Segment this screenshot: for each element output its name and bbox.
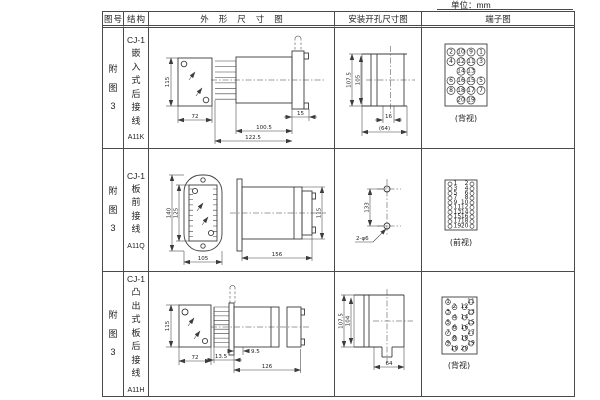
- terminal-circles-a11h: 1234567891011121314151617181920: [445, 298, 474, 352]
- terminal-number: 20: [457, 96, 465, 103]
- dim-hole-spacing: 133: [365, 202, 371, 213]
- outline-diagram-a11h: 115 72: [149, 273, 334, 396]
- terminal-number: 11: [467, 298, 475, 305]
- side-view-linework: 156 115: [230, 179, 326, 261]
- terminal-number: 17: [467, 87, 475, 94]
- terminal-circle: [448, 196, 452, 200]
- terminal-number: 20: [460, 222, 468, 229]
- fig-no: 附图3: [107, 306, 119, 363]
- terminal-diagram-a11h: 1234567891011121314151617181920 (背视): [423, 273, 574, 396]
- terminal-number: 7: [446, 329, 450, 336]
- dim-body-length: 156: [272, 252, 283, 258]
- cutout-linework: [362, 46, 415, 114]
- terminal-circle: [448, 215, 452, 219]
- terminal-number: 13: [467, 68, 475, 75]
- dim-pin-length: 13.5: [215, 354, 228, 360]
- terminal-number: 9: [446, 339, 450, 346]
- terminal-circle: [470, 196, 474, 200]
- structure-code: A11K: [128, 134, 145, 141]
- terminal-number: 19: [467, 96, 475, 103]
- terminal-number: 10: [450, 344, 458, 351]
- dim-front-height: 115: [165, 76, 171, 87]
- dim-body-length: 100.5: [256, 125, 272, 131]
- terminal-diagram-a11q: 1357911131517192468101214161820 (前视): [423, 149, 574, 271]
- structure-cell-a11k: CJ-1 嵌入式后接线 A11K: [124, 28, 149, 149]
- dim-front-height: 115: [165, 320, 171, 331]
- terminal-number: 20: [460, 344, 468, 351]
- terminal-number: 16: [457, 77, 465, 84]
- terminal-number: 4: [449, 58, 453, 65]
- structure-cell-a11h: CJ-1 凸出式板后接线 A11H: [124, 272, 149, 396]
- terminal-number: 11: [467, 58, 475, 65]
- terminal-number: 7: [479, 87, 483, 94]
- side-view-linework: 13.5 9.5 126: [206, 285, 311, 373]
- terminal-circle: [470, 210, 474, 214]
- terminal-view-label: (背视): [454, 113, 476, 123]
- terminal-circle: [470, 220, 474, 224]
- structure-info: CJ-1 嵌入式后接线 A11K: [127, 35, 145, 141]
- structure-cell-a11q: CJ-1 板前接线 A11Q: [124, 149, 149, 272]
- terminal-circle: [470, 206, 474, 210]
- hole-dims: 133 2-φ6: [355, 189, 386, 242]
- terminal-circle: [470, 187, 474, 191]
- dim-side-height: 115: [317, 207, 323, 218]
- terminal-number: 14: [457, 68, 465, 75]
- fig-no: 附图3: [107, 182, 119, 239]
- structure-model: CJ-1: [127, 171, 145, 181]
- fig-no-cell-a11h: 附图3: [103, 272, 124, 396]
- datasheet-page: 单位：mm 图号 结构 外形尺寸图 安装开孔尺寸图 端子图 附图3 CJ-1 嵌…: [0, 0, 600, 400]
- terminal-number: 8: [449, 87, 453, 94]
- outline-diagram-a11k: 115 72 1: [149, 28, 334, 148]
- structure-code: A11Q: [127, 243, 144, 250]
- dim-mount-inner-w: 16: [385, 114, 392, 120]
- terminal-cell-a11q: 1357911131517192468101214161820 (前视): [422, 149, 574, 272]
- header-mounting: 安装开孔尺寸图: [335, 12, 422, 28]
- dim-inner-height: 125: [174, 207, 180, 218]
- terminal-number: 5: [446, 318, 450, 325]
- terminal-view-label: (前视): [449, 237, 471, 247]
- structure-type: 板前接线: [130, 183, 142, 237]
- terminal-number: 13: [467, 308, 475, 315]
- cutout-dims: 107.5 104 64: [339, 295, 405, 370]
- terminal-cell-a11k: 2109141211314136161558181772019 (背视): [422, 28, 574, 149]
- front-view-linework: 115 72: [165, 58, 212, 123]
- dim-mount-outer-w: 64: [386, 361, 393, 367]
- outline-diagram-a11q: 140 125 105: [149, 149, 334, 271]
- terminal-number: 3: [479, 58, 483, 65]
- terminal-number: 2: [452, 303, 456, 310]
- mounting-cell-a11k: 107.5 105 16 (64): [335, 28, 422, 149]
- terminal-circle: [448, 224, 452, 228]
- structure-model: CJ-1: [127, 35, 145, 45]
- terminal-circle: [470, 182, 474, 186]
- hole-linework: [377, 179, 401, 236]
- terminal-number: 5: [479, 77, 483, 84]
- front-view-linework: 115 72: [165, 305, 211, 365]
- terminal-number: 19: [467, 339, 475, 346]
- dim-flange-width: 15: [297, 111, 304, 117]
- structure-code: A11H: [127, 387, 144, 394]
- header-outline: 外形尺寸图: [149, 12, 335, 28]
- mounting-diagram-a11q: 133 2-φ6: [335, 149, 421, 271]
- terminal-number: 6: [452, 324, 456, 331]
- fig-no: 附图3: [107, 60, 119, 117]
- dim-mount-outer-w: (64): [379, 126, 390, 132]
- dim-mount-outer-h: 107.5: [347, 72, 353, 88]
- terminal-circles-a11k: 2109141211314136161558181772019: [447, 48, 485, 104]
- terminal-circle: [470, 191, 474, 195]
- front-view-linework: 140 125 105: [167, 175, 223, 265]
- terminal-diagram-a11k: 2109141211314136161558181772019 (背视): [423, 28, 574, 148]
- dim-front-width: 72: [192, 114, 199, 120]
- dim-front-width: 105: [198, 256, 209, 262]
- structure-type: 嵌入式后接线: [130, 47, 142, 128]
- structure-model: CJ-1: [127, 274, 145, 284]
- outline-cell-a11k: 115 72 1: [149, 28, 335, 149]
- terminal-circles-a11q: 1357911131517192468101214161820: [448, 180, 474, 229]
- terminal-circle: [448, 182, 452, 186]
- terminal-number: 9: [469, 48, 473, 55]
- header-terminal: 端子图: [422, 12, 574, 28]
- terminal-circle: [448, 187, 452, 191]
- structure-type: 凸出式板后接线: [130, 286, 142, 381]
- dim-offset: 9.5: [251, 349, 260, 355]
- terminal-number: 10: [457, 48, 465, 55]
- dim-mount-inner-h: 105: [356, 74, 362, 85]
- terminal-number: 2: [449, 48, 453, 55]
- terminal-circle: [448, 191, 452, 195]
- hole-callout: 2-φ6: [356, 236, 369, 242]
- outline-cell-a11h: 115 72: [149, 272, 335, 396]
- terminal-circle: [470, 215, 474, 219]
- terminal-number: 3: [446, 308, 450, 315]
- structure-info: CJ-1 板前接线 A11Q: [127, 171, 145, 250]
- side-view-linework: 100.5 122.5 15: [211, 36, 325, 144]
- mounting-cell-a11q: 133 2-φ6: [335, 149, 422, 272]
- terminal-circle: [470, 224, 474, 228]
- terminal-number: 17: [467, 329, 475, 336]
- outline-cell-a11q: 140 125 105: [149, 149, 335, 272]
- terminal-number: 15: [467, 318, 475, 325]
- terminal-number: 18: [457, 87, 465, 94]
- mounting-cell-a11h: 107.5 104 64: [335, 272, 422, 396]
- dim-front-width: 72: [192, 355, 199, 361]
- terminal-number: 6: [449, 77, 453, 84]
- terminal-circle: [448, 206, 452, 210]
- terminal-view-label: (背视): [447, 360, 469, 370]
- terminal-number: 15: [467, 77, 475, 84]
- fig-no-cell-a11k: 附图3: [103, 28, 124, 149]
- dim-mount-inner-h: 104: [346, 315, 352, 326]
- terminal-circle: [448, 210, 452, 214]
- dimension-table: 图号 结构 外形尺寸图 安装开孔尺寸图 端子图 附图3 CJ-1 嵌入式后接线 …: [102, 11, 575, 397]
- unit-label: 单位：mm: [437, 0, 573, 10]
- structure-info: CJ-1 凸出式板后接线 A11H: [127, 274, 145, 394]
- terminal-number: 1: [446, 298, 450, 305]
- terminal-cell-a11h: 1234567891011121314151617181920 (背视): [422, 272, 574, 396]
- header-structure: 结构: [124, 12, 149, 28]
- dim-total-length: 122.5: [245, 135, 261, 141]
- header-fig-no: 图号: [103, 12, 124, 28]
- dim-body-length: 126: [262, 364, 273, 370]
- terminal-number: 12: [457, 58, 465, 65]
- dim-front-height: 140: [167, 207, 173, 218]
- terminal-number: 4: [452, 313, 456, 320]
- terminal-circle: [448, 201, 452, 205]
- terminal-number: 8: [452, 334, 456, 341]
- mounting-diagram-a11h: 107.5 104 64: [335, 273, 421, 396]
- mounting-diagram-a11k: 107.5 105 16 (64): [335, 28, 421, 148]
- terminal-circle: [470, 201, 474, 205]
- dim-mount-outer-h: 107.5: [339, 312, 345, 328]
- terminal-circle: [448, 220, 452, 224]
- terminal-number: 1: [479, 48, 483, 55]
- fig-no-cell-a11q: 附图3: [103, 149, 124, 272]
